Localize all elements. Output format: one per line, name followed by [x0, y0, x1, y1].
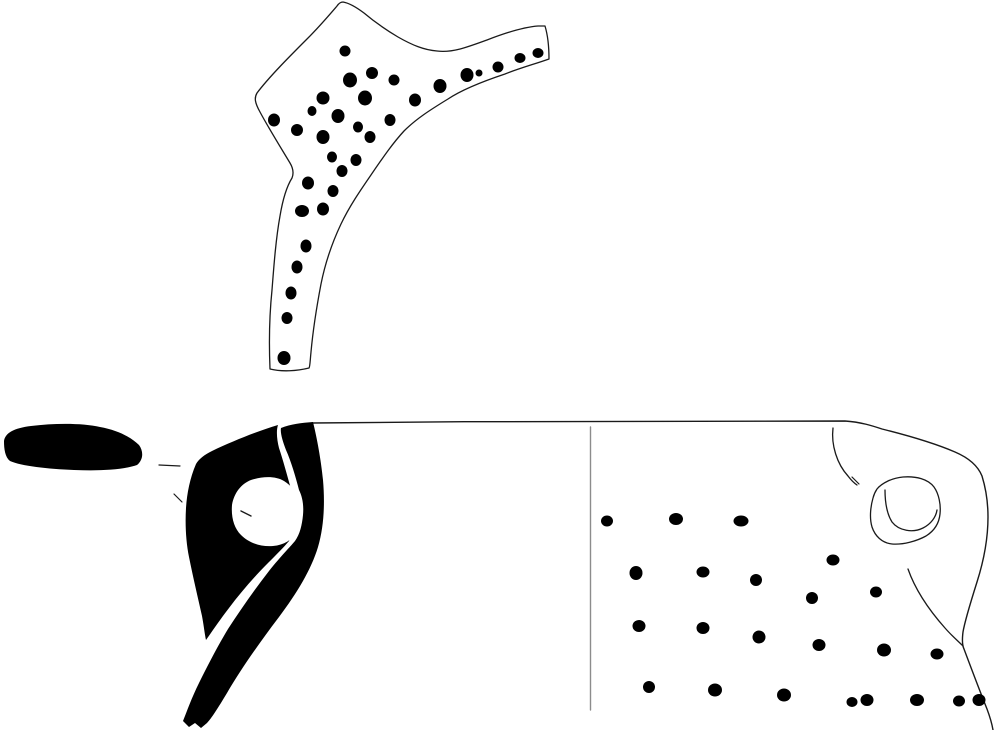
punctate-dot — [806, 592, 818, 604]
illustration-canvas — [0, 0, 995, 730]
punctate-dot — [295, 205, 309, 217]
punctate-dot — [931, 649, 944, 660]
punctate-dot — [630, 566, 643, 580]
punctate-dot — [697, 567, 710, 578]
punctate-dot — [753, 631, 766, 644]
punctate-dot — [633, 620, 646, 632]
illustration-page — [0, 0, 995, 730]
punctate-dot — [343, 73, 357, 88]
punctate-dot — [643, 681, 655, 693]
punctate-dot — [353, 122, 363, 133]
punctate-dot — [813, 639, 826, 651]
punctate-dot — [493, 62, 504, 73]
punctate-dot — [515, 53, 526, 63]
punctate-dot — [317, 203, 329, 216]
punctate-dot — [308, 106, 317, 116]
punctate-dot — [973, 694, 986, 706]
punctate-dot — [301, 240, 312, 253]
lug-outer-outline — [870, 477, 940, 544]
punctate-dot — [870, 587, 882, 598]
punctate-dot — [366, 67, 378, 79]
punctate-dot — [358, 91, 372, 106]
exterior-punctate-dots — [601, 513, 986, 707]
punctate-dot — [291, 124, 303, 136]
punctate-dot — [847, 697, 858, 707]
punctate-dot — [669, 513, 683, 525]
punctate-dot — [268, 114, 280, 127]
shoulder-curve — [908, 569, 963, 646]
punctate-dot — [601, 516, 613, 527]
sherd-fragment-outline — [255, 2, 549, 371]
punctate-dot — [777, 689, 791, 702]
section-tick-lower — [174, 494, 182, 502]
punctate-dot — [476, 70, 483, 77]
punctate-dot — [317, 130, 330, 144]
punctate-dot — [827, 555, 840, 566]
punctate-dot — [340, 46, 351, 57]
punctate-dot — [286, 287, 297, 300]
punctate-dot — [337, 165, 348, 177]
punctate-dot — [328, 185, 339, 197]
lug-inner-outline — [885, 490, 937, 531]
punctate-dot — [461, 68, 474, 82]
rim-section-blob — [4, 424, 142, 470]
punctate-dot — [389, 75, 400, 86]
punctate-dot — [877, 644, 891, 657]
punctate-dot — [317, 92, 330, 105]
handle-attachment-curve — [833, 428, 857, 485]
punctate-dot — [302, 177, 314, 190]
punctate-dot — [385, 114, 396, 126]
punctate-dot — [409, 94, 421, 107]
punctate-dot — [278, 351, 291, 365]
punctate-dot — [533, 48, 544, 58]
punctate-dot — [861, 694, 874, 706]
punctate-dot — [434, 79, 447, 93]
punctate-dot — [332, 109, 345, 123]
punctate-dot — [750, 574, 762, 586]
punctate-dot — [697, 622, 710, 634]
punctate-dot — [365, 131, 376, 143]
punctate-dot — [953, 696, 965, 707]
lug-tick — [852, 477, 859, 484]
punctate-dot — [282, 312, 293, 324]
punctate-dot — [708, 684, 722, 697]
punctate-dot — [734, 516, 749, 527]
punctate-dot — [351, 154, 362, 166]
punctate-dot — [292, 261, 303, 274]
section-tick-upper — [159, 465, 180, 466]
punctate-dot — [910, 694, 924, 706]
punctate-dot — [327, 152, 337, 163]
